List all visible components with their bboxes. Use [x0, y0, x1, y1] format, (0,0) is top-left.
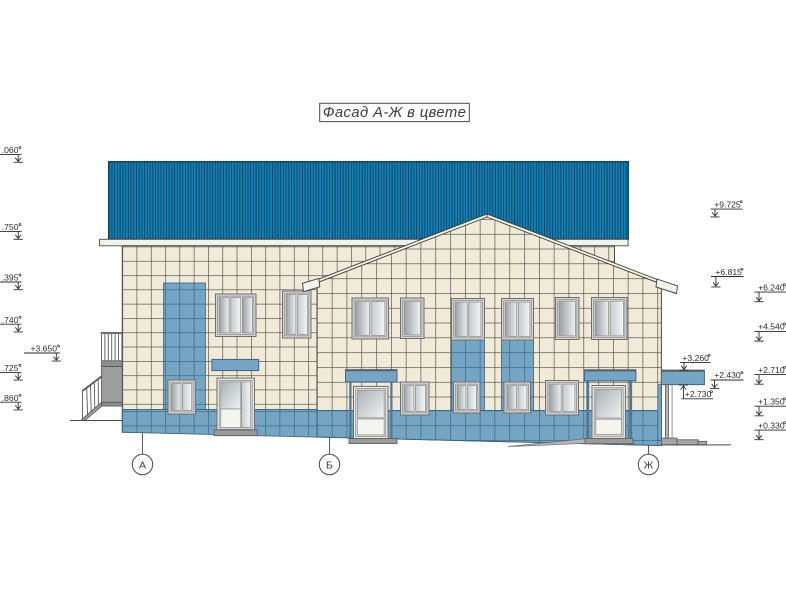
svg-text:.725: .725: [2, 363, 19, 373]
svg-text:+4.540: +4.540: [758, 322, 785, 332]
svg-text:+2.430: +2.430: [714, 370, 741, 380]
svg-text:.395: .395: [2, 273, 19, 283]
svg-text:+0.330: +0.330: [758, 420, 785, 430]
svg-text:.060: .060: [2, 145, 19, 155]
svg-text:+1.350: +1.350: [758, 396, 785, 406]
svg-text:Б: Б: [326, 459, 333, 471]
svg-text:+6.815: +6.815: [715, 267, 742, 277]
svg-text:Фасад А-Ж в цвете: Фасад А-Ж в цвете: [323, 105, 467, 121]
svg-text:.860: .860: [2, 393, 19, 403]
svg-text:А: А: [139, 459, 146, 471]
svg-text:Ж: Ж: [644, 459, 654, 471]
svg-text:+9.725: +9.725: [714, 199, 741, 209]
svg-text:+3.260: +3.260: [682, 353, 709, 363]
svg-text:+6.240: +6.240: [758, 282, 785, 292]
svg-text:.740: .740: [2, 315, 19, 325]
svg-text:.750: .750: [2, 222, 19, 232]
svg-text:+3.650: +3.650: [30, 344, 57, 354]
svg-text:+2.730: +2.730: [685, 389, 712, 399]
svg-text:+2.710: +2.710: [758, 365, 785, 375]
